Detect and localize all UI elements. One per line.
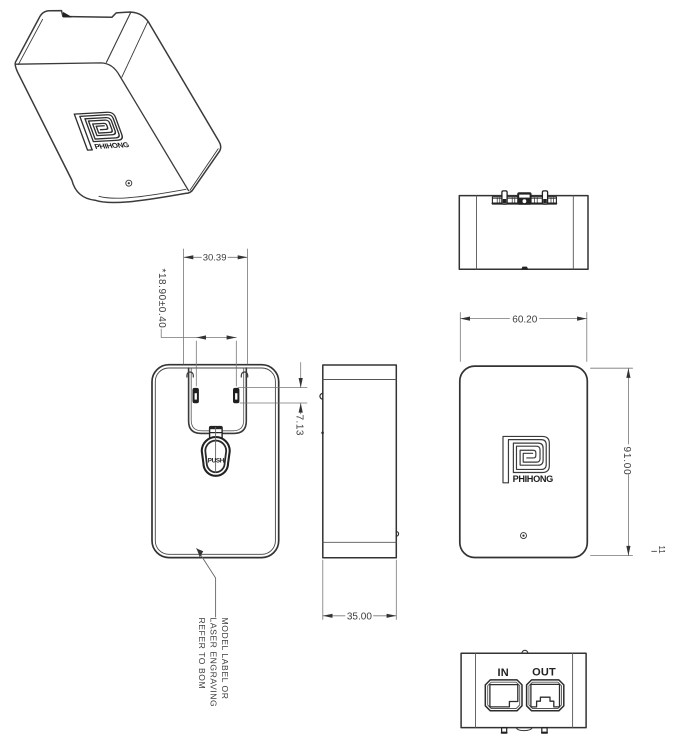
svg-text:60.20: 60.20 [512,314,537,325]
svg-text:7.13: 7.13 [294,415,305,436]
svg-text:PUSH: PUSH [208,457,225,464]
svg-text:91.00: 91.00 [621,447,632,476]
svg-text:30.39: 30.39 [203,253,227,264]
svg-text:11: 11 [657,546,666,554]
svg-text:35.00: 35.00 [347,611,372,622]
svg-text:MODEL LABEL OR: MODEL LABEL OR [220,618,230,700]
svg-text:IN: IN [497,667,508,679]
svg-text:OUT: OUT [532,666,556,678]
svg-text:LASER ENGRAVING: LASER ENGRAVING [209,618,219,708]
svg-text:*18.90±0.40: *18.90±0.40 [156,269,167,329]
svg-text:REFER TO BOM: REFER TO BOM [197,618,207,690]
